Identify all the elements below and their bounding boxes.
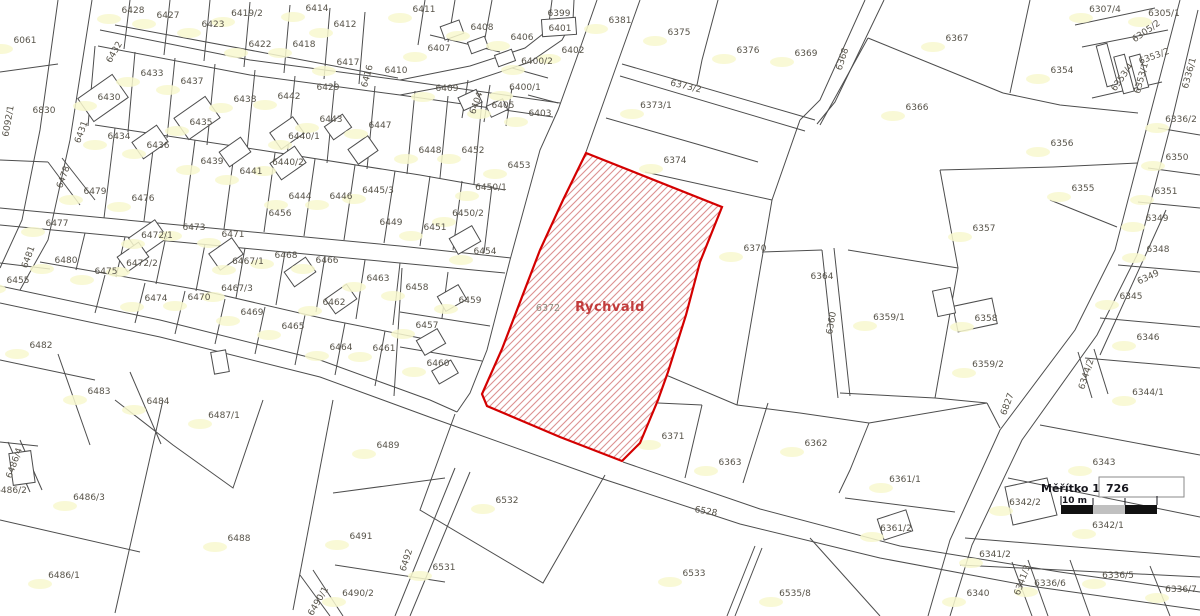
parcel-label: 6440/1 (288, 132, 320, 142)
parcel-label: 6472/2 (126, 259, 158, 269)
parcel-point-highlight (950, 322, 974, 332)
town-name-label: Rychvald (575, 300, 645, 315)
parcel-point-highlight (1112, 341, 1136, 351)
parcel-point-highlight (116, 77, 140, 87)
parcel-point-highlight (712, 54, 736, 64)
parcel-point-highlight (312, 66, 336, 76)
parcel-label: 6342/1 (1092, 521, 1124, 531)
parcel-label: 6453 (508, 161, 531, 171)
parcel-point-highlight (402, 367, 426, 377)
scale-bar-segment (1125, 505, 1157, 514)
parcel-point-highlight (73, 101, 97, 111)
parcel-point-highlight (719, 252, 743, 262)
parcel-label: 6351 (1155, 187, 1178, 197)
building-footprint (932, 287, 955, 316)
parcel-label: 6447 (369, 121, 392, 131)
parcel-point-highlight (921, 42, 945, 52)
parcel-point-highlight (253, 100, 277, 110)
parcel-point-highlight (309, 28, 333, 38)
parcel-label: 6486/3 (73, 493, 105, 503)
parcel-label: 6345 (1120, 292, 1143, 302)
parcel-point-highlight (122, 405, 146, 415)
parcel-label: 6440/2 (272, 158, 304, 168)
parcel-point-highlight (639, 164, 663, 174)
parcel-label: 6406 (511, 33, 534, 43)
parcel-label: 6376 (737, 46, 760, 56)
cadastral-map-viewer: 642864276419/264146423641260616422641864… (0, 0, 1200, 616)
parcel-label: 6464 (330, 343, 353, 353)
parcel-point-highlight (63, 395, 87, 405)
parcel-label: 6418 (293, 40, 316, 50)
parcel-label: 6429 (317, 83, 340, 93)
parcel-label: 6437 (181, 77, 204, 87)
parcel-label: 6373/1 (640, 101, 672, 111)
parcel-label: 6461 (373, 344, 396, 354)
parcel-point-highlight (224, 48, 248, 58)
parcel-label: 6466 (316, 256, 339, 266)
parcel-label: 6442 (278, 92, 301, 102)
parcel-label: 6361/2 (880, 524, 912, 534)
parcel-label: 6419/2 (231, 9, 263, 19)
parcel-label: 6409 (436, 84, 459, 94)
parcel-label: 6402 (562, 46, 585, 56)
parcel-label: 6450/1 (475, 183, 507, 193)
parcel-label: 6359/2 (972, 360, 1004, 370)
parcel-label: 6407 (428, 44, 451, 54)
parcel-label: 6480 (55, 256, 78, 266)
parcel-label: 6446 (330, 192, 353, 202)
parcel-label: 6381 (609, 16, 632, 26)
parcel-label: 6368 (835, 47, 852, 72)
parcel-point-highlight (291, 264, 315, 274)
parcel-label: 6412 (334, 20, 357, 30)
parcel-point-highlight (403, 52, 427, 62)
parcel-point-highlight (203, 542, 227, 552)
parcel-label: 6357 (973, 224, 996, 234)
parcel-label: 6355 (1072, 184, 1095, 194)
parcel-label: 6411 (413, 5, 436, 15)
parcel-point-highlight (381, 291, 405, 301)
parcel-label: 6371 (662, 432, 685, 442)
parcel-label: 6469 (241, 308, 264, 318)
parcel-label: 6361/1 (889, 475, 921, 485)
parcel-point-highlight (1121, 222, 1145, 232)
parcel-label: 6467/1 (232, 257, 264, 267)
parcel-point-highlight (434, 304, 458, 314)
parcel-label: 6359/1 (873, 313, 905, 323)
parcel-label: 6443 (320, 115, 343, 125)
parcel-label: 6470 (188, 293, 211, 303)
parcel-point-highlight (122, 149, 146, 159)
parcel-point-highlight (298, 306, 322, 316)
parcel-label: 6460 (427, 359, 450, 369)
parcel-label: 6369 (795, 49, 818, 59)
parcel-point-highlight (471, 504, 495, 514)
parcel-label: 6340 (967, 589, 990, 599)
parcel-point-highlight (344, 129, 368, 139)
parcel-label: 6476 (132, 194, 155, 204)
parcel-point-highlight (30, 264, 54, 274)
parcel-label: 6364 (811, 272, 834, 282)
parcel-label: 6360 (825, 311, 839, 336)
building-footprint (219, 137, 251, 167)
parcel-label: 6092/1 (1, 105, 16, 138)
parcel-point-highlight (942, 597, 966, 607)
parcel-point-highlight (342, 282, 366, 292)
parcel-label: 6336/1 (1181, 57, 1199, 90)
parcel-label: 6491 (350, 532, 373, 542)
parcel-label: 6307/4 (1089, 5, 1121, 15)
parcel-point-highlight (1047, 192, 1071, 202)
parcel-point-highlight (215, 175, 239, 185)
parcel-label: 6489 (377, 441, 400, 451)
parcel-label: 6367 (946, 34, 969, 44)
parcel-label: 6439 (201, 157, 224, 167)
parcel-label: 6430 (98, 93, 121, 103)
parcel-label: 6349 (1136, 268, 1161, 287)
parcel-point-highlight (21, 227, 45, 237)
parcel-label: 6478 (55, 165, 72, 190)
parcel-point-highlight (399, 231, 423, 241)
parcel-point-highlight (281, 12, 305, 22)
parcel-label: 6827 (999, 392, 1016, 417)
parcel-label: 6372 (536, 303, 560, 314)
parcel-point-highlight (1122, 253, 1146, 263)
parcel-label: 6454 (474, 247, 497, 257)
parcel-label: 6341/2 (979, 550, 1011, 560)
parcel-point-highlight (1026, 74, 1050, 84)
parcel-label: 6375 (668, 28, 691, 38)
parcel-label: 6462 (323, 298, 346, 308)
parcel-point-highlight (881, 111, 905, 121)
parcel-label: 6535/8 (779, 589, 811, 599)
parcel-point-highlight (0, 284, 6, 294)
parcel-point-highlight (1130, 195, 1154, 205)
parcel-point-highlight (770, 57, 794, 67)
scale-bar-label: 10 m (1062, 496, 1087, 506)
parcel-label: 6457 (416, 321, 439, 331)
parcel-label: 6356 (1051, 139, 1074, 149)
parcel-label: 6354 (1051, 66, 1074, 76)
parcel-label: 6458 (406, 283, 429, 293)
parcel-label: 6344/1 (1132, 388, 1164, 398)
parcel-label: 6435 (190, 118, 213, 128)
parcel-label: 6366 (906, 103, 929, 113)
parcel-label: 6410 (385, 66, 408, 76)
parcel-point-highlight (1095, 300, 1119, 310)
parcel-point-highlight (132, 19, 156, 29)
parcel-label: 6459 (459, 296, 482, 306)
parcel-point-highlight (216, 316, 240, 326)
parcel-point-highlight (305, 351, 329, 361)
parcel-point-highlight (1026, 147, 1050, 157)
parcel-label: 6401 (549, 24, 572, 34)
parcel-point-highlight (948, 232, 972, 242)
parcel-label: 6533 (683, 569, 706, 579)
parcel-point-highlight (0, 44, 13, 54)
parcel-label: 6451 (424, 223, 447, 233)
parcel-label: 6342/2 (1009, 498, 1041, 508)
building-footprint (467, 36, 488, 53)
parcel-label: 6486/2 (0, 486, 27, 496)
parcel-label: 6472/1 (141, 231, 173, 241)
parcel-label: 6343 (1093, 458, 1116, 468)
parcel-label: 6450/2 (452, 209, 484, 219)
scale-value: 726 (1106, 482, 1129, 495)
parcel-label: 6488 (228, 534, 251, 544)
parcel-label: 6449 (380, 218, 403, 228)
parcel-label: 6455 (7, 276, 30, 286)
parcel-label: 6473 (183, 223, 206, 233)
parcel-point-highlight (165, 126, 189, 136)
parcel-label: 6474 (145, 294, 168, 304)
parcel-point-highlight (1141, 161, 1165, 171)
parcel-label: 6456 (269, 209, 292, 219)
parcel-point-highlight (394, 154, 418, 164)
parcel-label: 6346 (1137, 333, 1160, 343)
parcel-label: 6436 (147, 141, 170, 151)
parcel-point-highlight (5, 349, 29, 359)
parcel-point-highlight (658, 577, 682, 587)
parcel-label: 6336/2 (1165, 115, 1197, 125)
building-footprint (416, 329, 445, 356)
parcel-label: 6532 (496, 496, 519, 506)
parcel-label: 6362 (805, 439, 828, 449)
parcel-point-highlight (209, 103, 233, 113)
parcel-label: 6487/1 (208, 411, 240, 421)
parcel-point-highlight (449, 255, 473, 265)
parcel-label: 6448 (419, 146, 442, 156)
parcel-point-highlight (643, 36, 667, 46)
parcel-label: 6471 (222, 230, 245, 240)
parcel-label: 6484 (147, 397, 170, 407)
parcel-label: 6433 (141, 69, 164, 79)
parcel-label: 6350 (1166, 153, 1189, 163)
parcel-label: 6344/2 (1077, 358, 1096, 391)
parcel-label: 6441 (240, 167, 263, 177)
parcel-label: 6490/2 (342, 589, 374, 599)
building-footprint (211, 350, 230, 374)
building-footprint (348, 136, 378, 165)
parcel-label: 6061 (14, 36, 37, 46)
parcel-label: 6492 (399, 548, 416, 573)
parcel-label: 6363 (719, 458, 742, 468)
parcel-label: 6483 (88, 387, 111, 397)
parcel-label: 6477 (46, 219, 69, 229)
parcel-point-highlight (156, 85, 180, 95)
parcel-label: 6348 (1147, 245, 1170, 255)
parcel-label: 6531 (433, 563, 456, 573)
parcel-label: 6403 (529, 109, 552, 119)
parcel-label: 6336/5 (1102, 571, 1134, 581)
parcel-point-highlight (107, 202, 131, 212)
parcel-label: 6482 (30, 341, 53, 351)
parcel-label: 6405 (492, 101, 515, 111)
parcel-point-highlight (83, 140, 107, 150)
parcel-label: 6349 (1146, 214, 1169, 224)
parcel-label: 6370 (744, 244, 767, 254)
parcel-label: 6305/1 (1148, 9, 1180, 19)
scale-bar-segment (1061, 505, 1093, 514)
parcel-point-highlight (268, 48, 292, 58)
parcel-point-highlight (504, 117, 528, 127)
parcel-label: 6414 (306, 4, 329, 14)
parcel-label: 6486/1 (48, 571, 80, 581)
parcel-label: 6475 (95, 267, 118, 277)
scale-label: Měřítko 1: (1041, 482, 1104, 495)
parcel-point-highlight (446, 31, 470, 41)
parcel-label: 6428 (122, 6, 145, 16)
parcel-point-highlight (411, 92, 435, 102)
parcel-label: 6479 (84, 187, 107, 197)
parcel-label: 6408 (471, 23, 494, 33)
parcel-point-highlight (59, 195, 83, 205)
parcel-point-highlight (483, 169, 507, 179)
parcel-point-highlight (177, 28, 201, 38)
parcel-label: 6399 (548, 9, 571, 19)
scale-bar-segment (1093, 505, 1125, 514)
parcel-label: 6830 (33, 106, 56, 116)
parcel-point-highlight (391, 329, 415, 339)
parcel-point-highlight (408, 571, 432, 581)
parcel-point-highlight (97, 14, 121, 24)
parcel-label: 6434 (108, 132, 131, 142)
parcel-label: 6438 (234, 95, 257, 105)
parcel-point-highlight (120, 302, 144, 312)
parcel-label: 6465 (282, 322, 305, 332)
parcel-point-highlight (352, 449, 376, 459)
parcel-point-highlight (325, 540, 349, 550)
parcel-label: 6432 (105, 40, 125, 65)
parcel-point-highlight (348, 352, 372, 362)
parcel-label: 6468 (275, 251, 298, 261)
parcel-label: 6336/6 (1034, 579, 1066, 589)
parcel-label: 6528 (694, 505, 719, 519)
parcel-point-highlight (694, 466, 718, 476)
parcel-label: 6445/3 (362, 186, 394, 196)
parcel-label: 6374 (664, 156, 687, 166)
parcel-label: 6467/3 (221, 284, 253, 294)
parcel-label: 6336/7 (1165, 585, 1197, 595)
parcel-point-highlight (1068, 466, 1092, 476)
parcel-label: 6452 (462, 146, 485, 156)
parcel-label: 6358 (975, 314, 998, 324)
parcel-label: 6444 (289, 192, 312, 202)
parcel-point-highlight (176, 165, 200, 175)
scale-widget: Měřítko 1: 726 10 m (1041, 477, 1184, 514)
cadastral-map-canvas[interactable]: 642864276419/264146423641260616422641864… (0, 0, 1200, 616)
parcel-point-highlight (780, 447, 804, 457)
parcel-point-highlight (257, 330, 281, 340)
parcel-label: 6400/1 (509, 83, 541, 93)
parcel-label: 6463 (367, 274, 390, 284)
parcel-label: 6423 (202, 20, 225, 30)
parcel-point-highlight (70, 275, 94, 285)
parcel-label: 6400/2 (521, 57, 553, 67)
parcel-label: 6417 (337, 58, 360, 68)
parcel-label: 6422 (249, 40, 272, 50)
parcel-point-highlight (584, 24, 608, 34)
parcel-label: 6427 (157, 11, 180, 21)
parcel-point-highlight (486, 41, 510, 51)
parcel-point-highlight (388, 13, 412, 23)
parcel-point-highlight (197, 238, 221, 248)
